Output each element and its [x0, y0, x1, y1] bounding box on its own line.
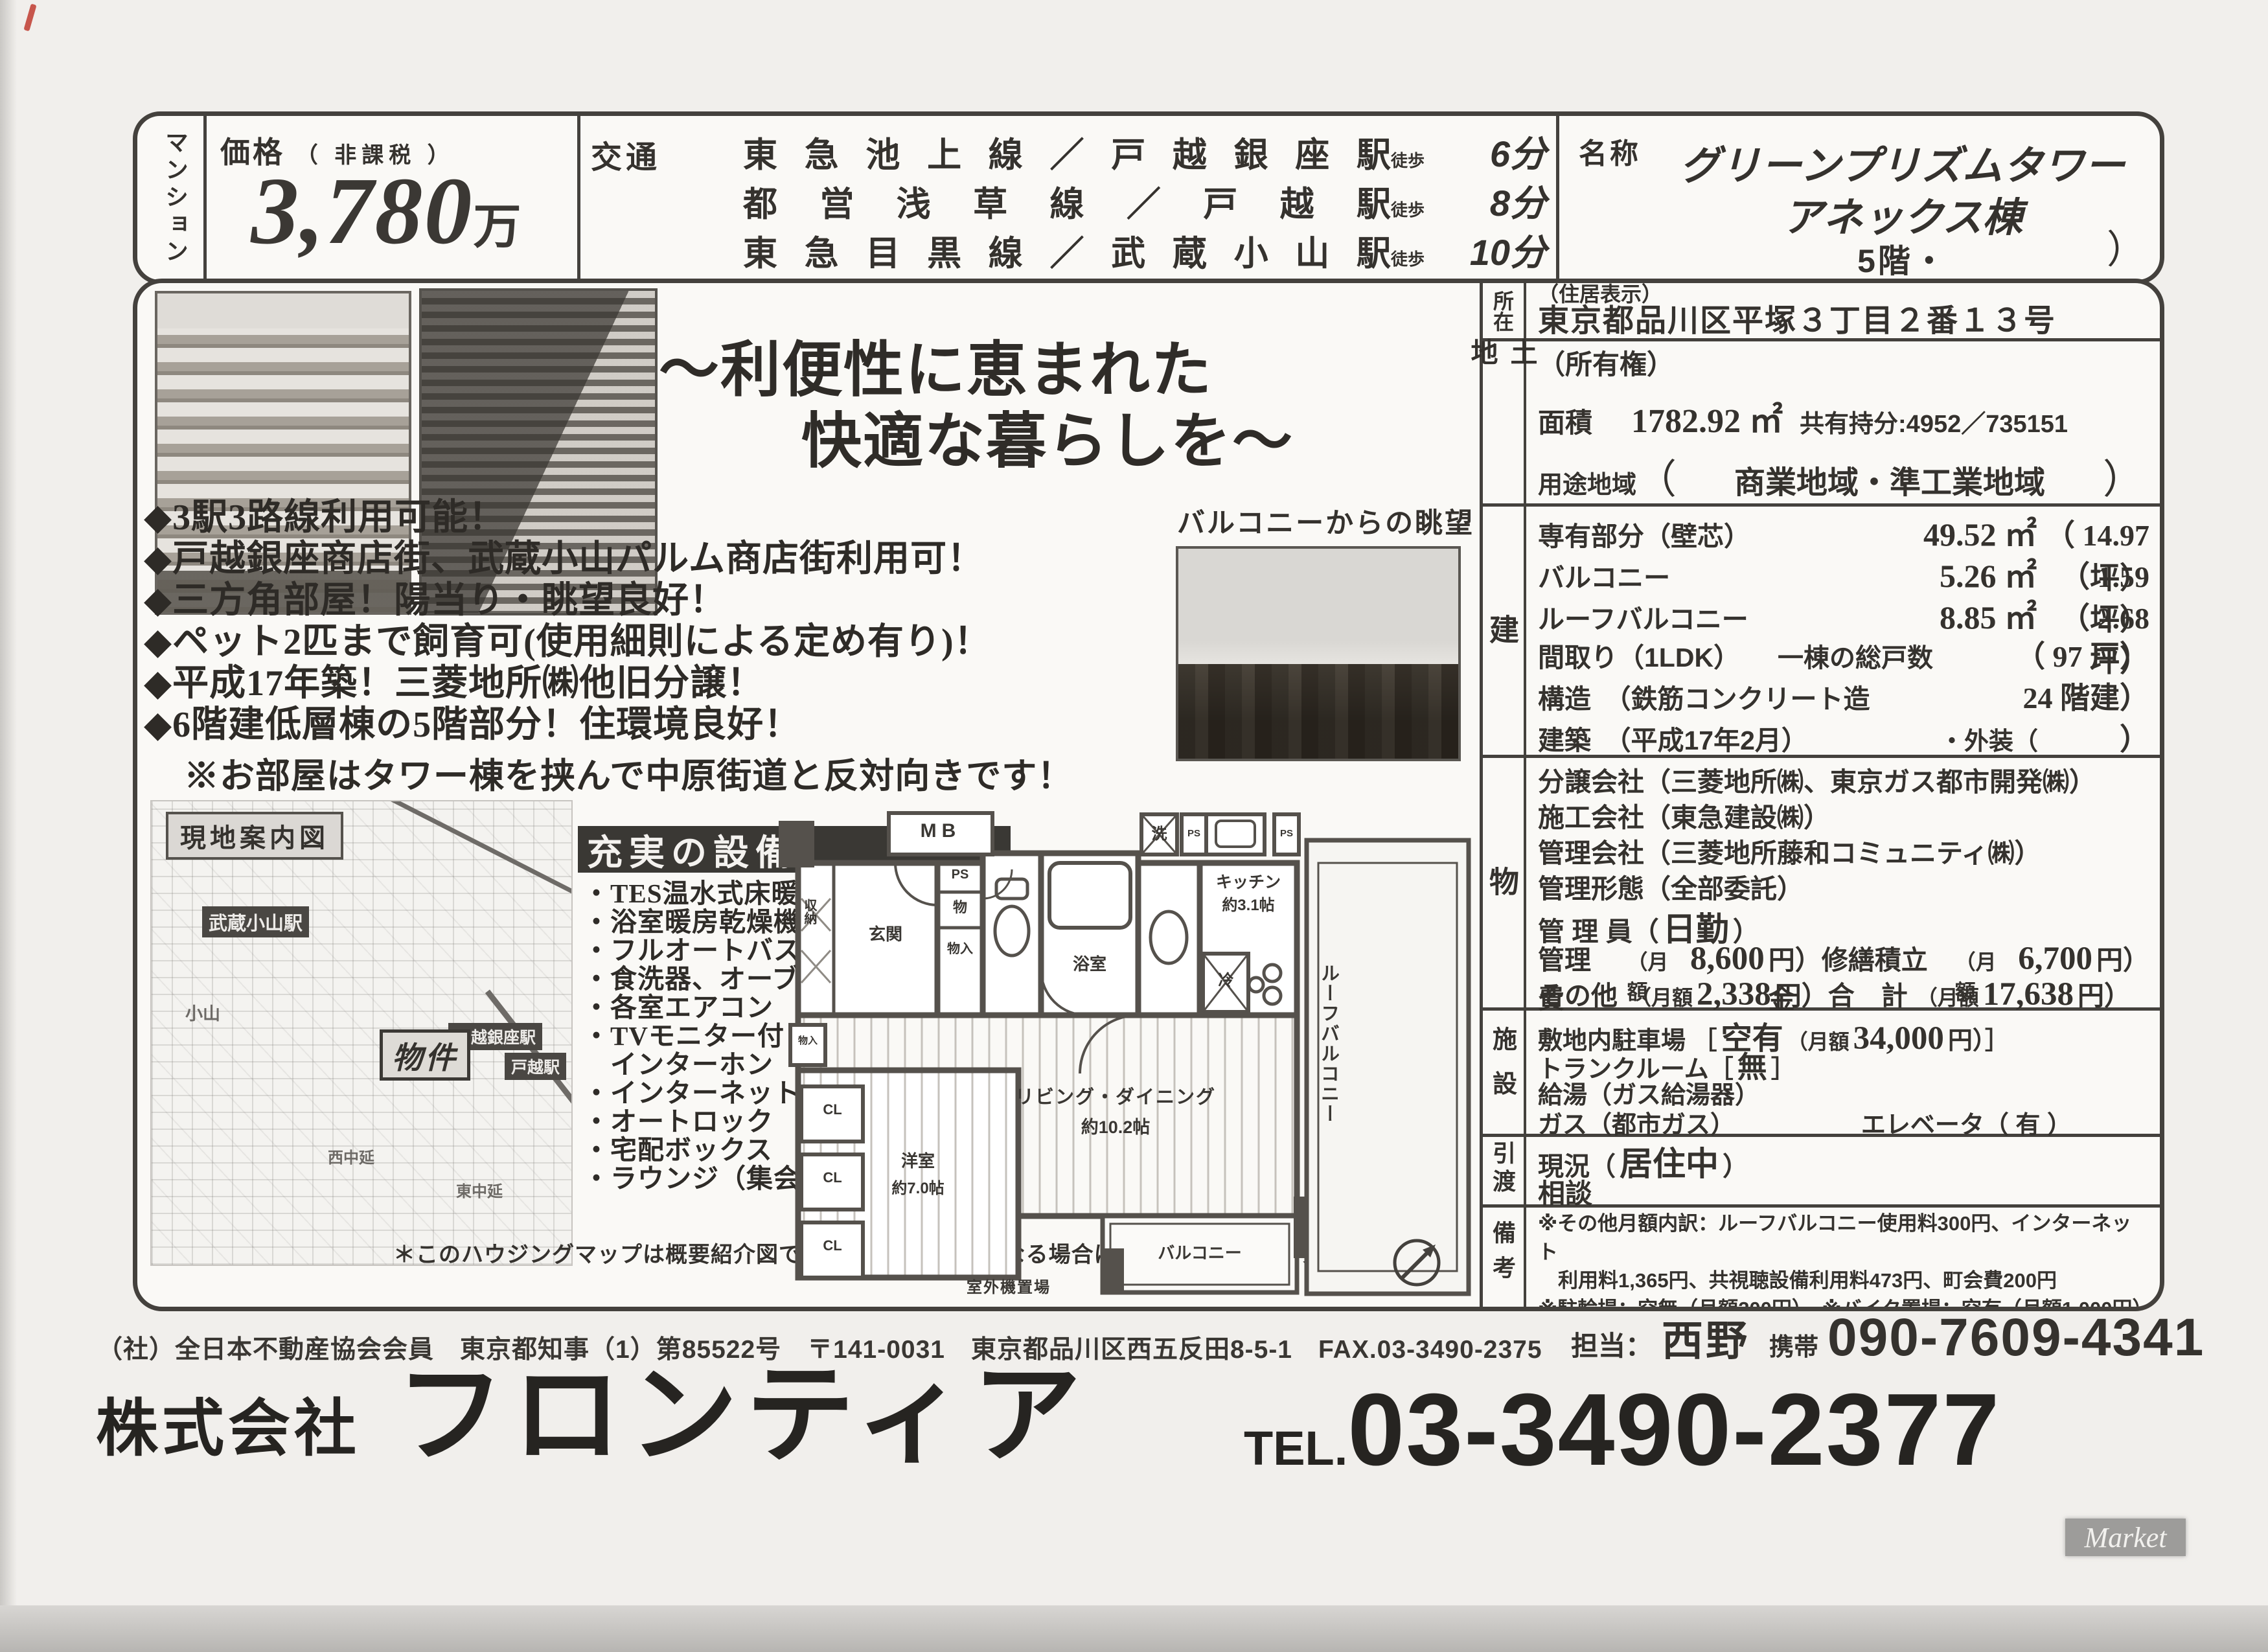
selling-point: ◆3駅3路線利用可能！ [144, 497, 1258, 538]
sonota-amount: 2,338 [1693, 976, 1775, 1013]
name-label: 名称 [1579, 130, 1641, 172]
built-line: 建築 （平成17年2月） ・外装（ ） [1538, 716, 2149, 757]
balcony-view-photo [1176, 546, 1461, 761]
cell-tochi: （所有権） 面積 1782.92 ㎡ 共有持分:4952／735151 用途地域… [1528, 343, 2149, 503]
access-line: 東急目黒線／武蔵小山駅 徒歩 10分 [743, 224, 1546, 273]
building-floor: 5階・ [1640, 235, 2165, 282]
divider [1556, 116, 1559, 280]
divider [203, 116, 207, 280]
floor-plan-drawing [779, 801, 1475, 1303]
roof-label: ルーフバルコニー [1538, 597, 1875, 636]
address: 東京都品川区平塚３丁目２番１３号 [1538, 305, 2149, 338]
fp-mb: MB [911, 821, 970, 842]
cell-shisetsu: 敷地内駐車場 ［ 空有 （月額 34,000 円）］ トランクルーム［ 無 ］ … [1528, 1013, 2149, 1134]
row-label-hikiwatashi: 引渡 [1480, 1134, 1525, 1204]
elevator-value: エレベータ（ 有 ） [1861, 1105, 2149, 1140]
company-title: フロンティア [396, 1360, 1089, 1469]
ownership: （所有権） [1538, 343, 2149, 393]
selling-points: ◆3駅3路線利用可能！ ◆戸越銀座商店街、武蔵小山パルム商店街利用可！ ◆三方角… [144, 497, 1258, 746]
access-line: 都営浅草線／戸越駅 徒歩 8分 [743, 174, 1546, 224]
access-walk: 徒歩 [1391, 148, 1436, 172]
fp-ps: PS [1274, 829, 1300, 839]
fp-washer: 洗 [1145, 826, 1174, 842]
access-label: 交通 [591, 132, 661, 177]
fp-living: リビング・ダイニング [1005, 1088, 1226, 1107]
zone-line: 用途地域 （ 商業地域・準工業地域 ） [1538, 446, 2149, 498]
fp-balcony: バルコニー [1138, 1245, 1261, 1262]
map-property-marker: 物件 [380, 1029, 470, 1081]
access-line: 東急池上線／戸越銀座駅 徒歩 6分 [743, 125, 1546, 174]
parking-getsugaku: （月額 [1787, 1026, 1850, 1055]
fp-outdoor-unit: 室外機置場 [967, 1279, 1051, 1296]
madori-line: 間取り（1LDK） 一棟の総戸数 （ 97 戸） [1538, 633, 2149, 674]
built-label: 建築 （平成17年2月） [1538, 718, 1940, 757]
land-area-line: 面積 1782.92 ㎡ 共有持分:4952／735151 [1538, 393, 2149, 446]
parking-amount: 34,000 [1850, 1020, 1948, 1057]
area-value: 1782.92 ㎡ [1592, 393, 1800, 442]
fp-kitchen: キッチン [1201, 874, 1296, 891]
floor-plan: MB PS 物 物入 収納 玄関 浴室 洗 PS PS 冷 キッチン 約3.1帖… [779, 801, 1475, 1303]
shuzen-amount: 6,700 [2014, 940, 2096, 978]
selling-point: ◆6階建低層棟の5階部分！住環境良好！ [144, 704, 1258, 746]
row-divider [1480, 503, 2160, 507]
railway-line [358, 800, 573, 950]
selling-point: ◆戸越銀座商店街、武蔵小山パルム商店街利用可！ [144, 538, 1258, 580]
map-town-label: 東中延 [456, 1178, 503, 1201]
roof-m2: 8.85 ㎡ [1875, 591, 2037, 638]
building-name-line2: アネックス棟 [1640, 185, 2165, 243]
senyu-line: 専有部分（壁芯） 49.52 ㎡ （ 14.97 坪） [1538, 509, 2149, 550]
cell-shozai: （住居表示） 東京都品川区平塚３丁目２番１３号 [1528, 283, 2149, 338]
genkyo-line: 現況（ 居住中 ） [1538, 1137, 2149, 1172]
map-town-label: 小山 [185, 1000, 220, 1025]
zone-open-paren: （ [1636, 446, 1677, 505]
selling-point-note: ※お部屋はタワー棟を挟んで中原街道と反対向きです！ [144, 747, 1073, 798]
area-label: 面積 [1538, 401, 1592, 441]
price-amount: 3,780 [251, 158, 474, 264]
trunk-close: ］ [1771, 1049, 1796, 1084]
balcony-label: バルコニー [1538, 556, 1875, 595]
genkyo-status: 居住中 [1616, 1137, 1723, 1185]
roof-balcony-line: ルーフバルコニー 8.85 ㎡ （ 2.68 坪） [1538, 591, 2149, 633]
fp-closet: CL [810, 1238, 855, 1253]
fp-ps: PS [1181, 829, 1207, 839]
zone-close-paren: ） [2103, 446, 2149, 505]
kozo-floors: 24 階建） [1981, 674, 2149, 717]
tel-number: 03-3490-2377 [1347, 1379, 2000, 1481]
kanrihi-amount: 8,600 [1686, 940, 1769, 978]
gokei-getsugaku: （月額 [1908, 981, 1979, 1011]
zone-value: 商業地域・準工業地域 [1677, 457, 2103, 502]
access-route: 東急池上線／戸越銀座駅 [743, 128, 1391, 177]
divider [577, 116, 580, 280]
cell-hikiwatashi: 現況（ 居住中 ） 相談 [1528, 1137, 2149, 1204]
biko-line: 利用料1,365円、共視聴設備利用料473円、町会費200円 [1538, 1267, 2149, 1295]
gaiso-close: ） [2038, 716, 2149, 759]
fp-kitchen-size: 約3.1帖 [1201, 897, 1296, 913]
market-stamp: Market [2065, 1519, 2186, 1556]
gokei-label: 円）合 計 [1775, 974, 1908, 1013]
fp-bedroom-size: 約7.0帖 [873, 1180, 963, 1197]
fp-bedroom: 洋室 [882, 1153, 954, 1170]
access-minutes: 10分 [1436, 224, 1546, 276]
madori-label: 間取り（1LDK） [1538, 636, 1778, 674]
fp-genkan: 玄関 [847, 926, 924, 943]
real-estate-flyer: マンション 価格 （ 非課税 ） 3,780万円 交通 東急池上線／戸越銀座駅 … [0, 0, 2268, 1652]
gas-line: ガス（都市ガス） エレベータ（ 有 ） [1538, 1105, 2149, 1134]
selling-point: ◆三方角部屋！陽当り・眺望良好！ [144, 580, 1258, 621]
balcony-m2: 5.26 ㎡ [1875, 550, 2037, 597]
kanri-keitai-line: 管理形態（全部委託） [1538, 867, 2149, 902]
seko-line: 施工会社（東急建設㈱） [1538, 796, 2149, 831]
gaiso-label: ・外装（ [1940, 721, 2038, 757]
biko-line: ※その他月額内訳：ルーフバルコニー使用料300円、インターネット [1538, 1210, 2149, 1267]
zone-label: 用途地域 [1538, 465, 1636, 500]
tantou-name: 西野 [1662, 1308, 1750, 1368]
kanrinin-line: 管 理 員（ 日勤 ） [1538, 902, 2149, 938]
sonota-label: その他 [1538, 974, 1618, 1013]
access-route: 都営浅草線／戸越駅 [743, 177, 1391, 226]
row-label-bukken: 物 [1480, 755, 1525, 1007]
tantou-label: 担当： [1571, 1324, 1653, 1364]
access-minutes: 6分 [1436, 125, 1546, 178]
scan-edge-left [0, 0, 17, 1652]
units-label: 一棟の総戸数 [1778, 637, 1991, 674]
parking-close: 円）］ [1948, 1020, 2010, 1056]
row-label-tochi: 土地 [1480, 338, 1525, 503]
share-value: 共有持分:4952／735151 [1800, 404, 2068, 439]
balcony-line: バルコニー 5.26 ㎡ （ 1.59 坪） [1538, 550, 2149, 591]
location-map: 現地案内図 武蔵小山駅 戸越銀座駅 戸越駅 物件 小山 西中延 東中延 [150, 800, 573, 1266]
tel-label: TEL. [1244, 1421, 1347, 1476]
kozo-line: 構造 （鉄筋コンクリート造 24 階建） [1538, 674, 2149, 716]
fp-shunou: 収納 [802, 899, 816, 983]
sonota-getsugaku: （月額 [1618, 981, 1693, 1011]
units-value: （ 97 戸） [1991, 633, 2149, 676]
fp-closet: CL [810, 1170, 855, 1185]
selling-point: ◆平成17年築！三菱地所㈱他旧分譲！ [144, 663, 1258, 704]
fp-fridge: 冷 [1208, 972, 1244, 989]
gokei-close: 円） [2078, 974, 2131, 1013]
bunjo-line: 分譲会社（三菱地所㈱、東京ガス都市開発㈱） [1538, 760, 2149, 796]
cell-bukken: 分譲会社（三菱地所㈱、東京ガス都市開発㈱） 施工会社（東急建設㈱） 管理会社（三… [1528, 760, 2149, 1007]
name-closing-paren: ） [2107, 218, 2146, 275]
row-label-shozai: 所在 [1480, 283, 1525, 338]
row-label-tatemono: 建 [1480, 503, 1525, 755]
kozo-label: 構造 （鉄筋コンクリート造 [1538, 677, 1981, 716]
contact-person: 担当： 西野 携帯 090-7609-4341 [1571, 1307, 2205, 1368]
selling-point: ◆ペット2匹まで飼育可(使用細則による定め有り)！ [144, 621, 1258, 663]
access-lines: 東急池上線／戸越銀座駅 徒歩 6分 都営浅草線／戸越駅 徒歩 8分 東急目黒線／… [743, 125, 1546, 273]
property-type-tab: マンション [146, 122, 203, 273]
fp-monoire: 物入 [792, 1036, 824, 1046]
jukyo-hyoji: （住居表示） [1538, 283, 2149, 305]
row-label-shisetsu: 施設 [1480, 1007, 1525, 1134]
view-photo-label: バルコニーからの眺望 [1177, 501, 1474, 541]
header-box: マンション 価格 （ 非課税 ） 3,780万円 交通 東急池上線／戸越銀座駅 … [133, 111, 2164, 284]
fp-ps: PS [939, 868, 981, 882]
fp-mono: 物 [939, 900, 981, 915]
parking-line: 敷地内駐車場 ［ 空有 （月額 34,000 円）］ [1538, 1013, 2149, 1044]
fp-roof-balcony: ルーフバルコニー [1318, 963, 1338, 1158]
senyu-label: 専有部分（壁芯） [1538, 514, 1875, 553]
fp-monoire: 物入 [939, 943, 981, 956]
kanri-company-line: 管理会社（三菱地所藤和コミュニティ㈱） [1538, 831, 2149, 867]
access-route: 東急目黒線／武蔵小山駅 [743, 226, 1391, 275]
map-station-togoshi: 戸越駅 [505, 1053, 566, 1080]
red-pen-mark [23, 4, 36, 32]
catchphrase-line2: 快適な暮らしを～ [801, 392, 1294, 479]
company-name: 株式会社 フロンティア [96, 1360, 1089, 1469]
keitai-label: 携帯 [1759, 1327, 1818, 1362]
map-town-label: 西中延 [328, 1145, 374, 1167]
access-walk: 徒歩 [1391, 197, 1436, 221]
access-minutes: 8分 [1436, 174, 1546, 227]
keitai-number: 090-7609-4341 [1827, 1307, 2205, 1368]
fp-living-size: 約10.2帖 [1005, 1118, 1226, 1136]
senyu-m2: 49.52 ㎡ [1875, 509, 2037, 555]
gas-value: ガス（都市ガス） [1538, 1105, 1735, 1140]
fp-closet: CL [810, 1102, 855, 1117]
phone-number: TEL. 03-3490-2377 [1244, 1379, 2000, 1481]
shuzen-close: 円） [2096, 938, 2149, 977]
scan-edge-bottom [0, 1605, 2268, 1652]
fp-bath: 浴室 [1057, 956, 1122, 973]
company-prefix: 株式会社 [96, 1398, 360, 1469]
cell-biko: ※その他月額内訳：ルーフバルコニー使用料300円、インターネット 利用料1,36… [1528, 1210, 2149, 1307]
main-box: ～利便性に恵まれた 快適な暮らしを～ ◆3駅3路線利用可能！ ◆戸越銀座商店街、… [133, 279, 2164, 1311]
row-label-biko: 備考 [1480, 1204, 1525, 1307]
genkyo-close: ） [1723, 1145, 1748, 1183]
kyuto-line: 給湯（ガス給湯器） [1538, 1075, 2149, 1105]
cell-tatemono: 専有部分（壁芯） 49.52 ㎡ （ 14.97 坪） バルコニー 5.26 ㎡… [1528, 509, 2149, 755]
gokei-amount: 17,638 [1979, 976, 2078, 1013]
map-station-musashikoyama: 武蔵小山駅 [202, 906, 309, 937]
row-divider [1480, 338, 2160, 341]
building-name-line1: グリーンプリズムタワー [1640, 133, 2165, 191]
map-title: 現地案内図 [166, 812, 343, 860]
access-walk: 徒歩 [1391, 246, 1436, 270]
